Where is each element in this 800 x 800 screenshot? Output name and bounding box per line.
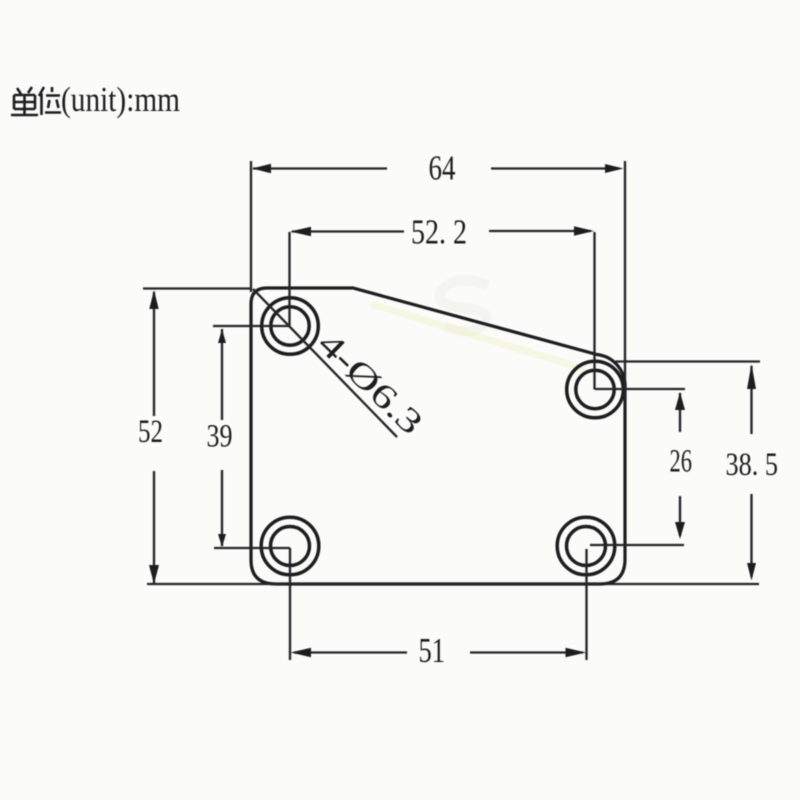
- svg-text:52. 2: 52. 2: [411, 213, 467, 252]
- svg-text:26: 26: [670, 444, 693, 480]
- svg-text:51: 51: [419, 631, 446, 670]
- svg-text:4-Ø6.3: 4-Ø6.3: [310, 325, 429, 442]
- svg-text:38. 5: 38. 5: [726, 447, 779, 483]
- svg-text:64: 64: [429, 149, 456, 188]
- svg-text:(unit):mm: (unit):mm: [61, 80, 180, 119]
- svg-text:52: 52: [138, 414, 163, 450]
- svg-text:39: 39: [207, 419, 233, 455]
